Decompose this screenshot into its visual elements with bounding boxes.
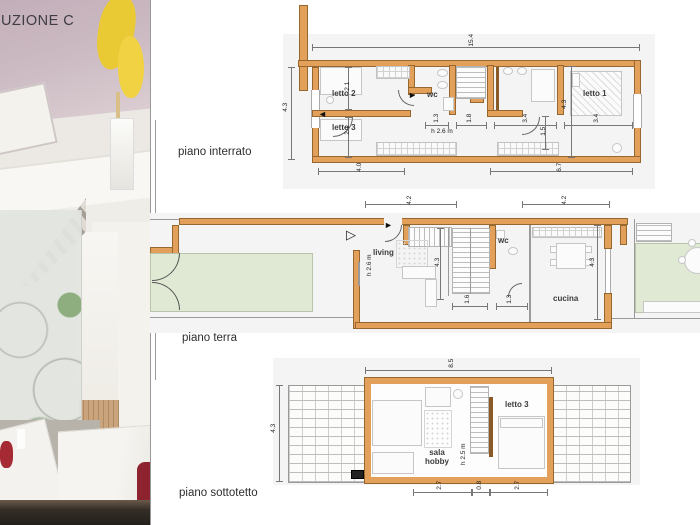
dim-line <box>594 225 601 320</box>
sottotetto-label: piano sottotetto <box>179 487 258 499</box>
sofa <box>425 279 437 307</box>
dim-line <box>365 367 552 374</box>
red-vase <box>0 441 13 468</box>
wall-line <box>150 317 355 318</box>
wardrobe <box>497 142 559 156</box>
wall-segment <box>179 218 628 225</box>
terra-label: piano terra <box>182 332 237 344</box>
dim-label: 15.4 <box>469 32 476 48</box>
wall-line <box>448 228 449 296</box>
rug <box>424 410 452 448</box>
wall-segment <box>487 65 494 115</box>
flower-bouquet <box>118 36 144 98</box>
dim-label: 2.1 <box>345 78 352 94</box>
wall-segment <box>172 225 179 254</box>
chair <box>550 246 557 253</box>
roof-hatch <box>552 385 631 483</box>
wall-segment <box>299 5 308 91</box>
bidet <box>437 81 448 89</box>
door-swing-arrow-icon: ◄ <box>318 110 327 119</box>
room-label-wc: wc <box>427 91 438 100</box>
dim-line <box>312 44 640 51</box>
interrato-label: piano interrato <box>178 146 252 158</box>
sink <box>443 97 454 111</box>
height-note: h 2.6 m <box>425 129 459 136</box>
dim-label: 4.3 <box>271 420 278 436</box>
chair <box>585 246 592 253</box>
wall-segment <box>620 225 627 245</box>
dim-label: 1.8 <box>467 110 474 126</box>
wardrobe <box>376 142 457 156</box>
dining-table <box>556 243 586 269</box>
dim-label: 1.3 <box>434 110 441 126</box>
toilet <box>503 67 513 75</box>
chair <box>550 259 557 266</box>
staircase <box>456 66 486 99</box>
rug <box>396 240 428 268</box>
railing-wall <box>489 397 493 457</box>
plumbing-wall <box>496 67 499 111</box>
staircase <box>470 386 489 454</box>
roof-hatch <box>288 385 366 483</box>
dim-label: 4.3 <box>435 254 442 270</box>
stool <box>453 389 463 399</box>
dim-label: 3.4 <box>523 110 530 126</box>
wall-segment <box>604 225 612 249</box>
room-label-cucina: cucina <box>553 295 578 304</box>
dim-label: 1.5 <box>541 123 548 139</box>
wardrobe <box>376 66 410 79</box>
kitchen-counter <box>532 227 602 238</box>
height-note: h 2.5 m <box>461 437 468 471</box>
dim-label: 3.4 <box>594 110 601 126</box>
bench <box>643 301 700 313</box>
room-label-wc: wc <box>498 237 509 246</box>
toilet <box>437 69 448 77</box>
door-swing-arrow-icon: ► <box>384 221 393 230</box>
outdoor-stairs <box>636 223 672 242</box>
dim-label: 2.1 <box>345 122 352 138</box>
wall-segment <box>487 110 523 117</box>
cabinet <box>425 387 451 407</box>
height-note: h 2.6 m <box>367 248 374 282</box>
dim-label: 1.6 <box>465 291 472 307</box>
corridor <box>78 232 118 407</box>
dim-label: 2.7 <box>437 477 444 493</box>
dim-label: 4.3 <box>590 254 597 270</box>
dim-label: 1.3 <box>507 291 514 307</box>
window <box>605 249 611 293</box>
dim-label: 4.3 <box>562 96 569 112</box>
door-swing-arrow-icon: ► <box>408 91 417 100</box>
wall-line <box>529 225 531 322</box>
sofa <box>372 452 414 474</box>
outdoor-chair <box>688 239 696 247</box>
wall-segment <box>355 322 612 329</box>
candle <box>17 429 25 449</box>
window <box>633 94 642 128</box>
dim-line <box>568 66 575 158</box>
room-label-sala-hobby: sala hobby <box>424 449 450 467</box>
dim-label: 0.8 <box>477 477 484 493</box>
wall-segment <box>489 225 496 269</box>
dim-label: 4.2 <box>562 192 569 208</box>
tv <box>358 262 360 286</box>
dark-floor-strip <box>0 500 151 525</box>
wall-line <box>150 219 180 220</box>
dim-label: 4.3 <box>283 99 290 115</box>
page-title: UZIONE C <box>1 13 74 29</box>
bidet <box>517 67 527 75</box>
dim-label: 6.7 <box>557 159 564 175</box>
pillow <box>500 418 543 428</box>
dim-label: 2.7 <box>515 477 522 493</box>
vase <box>110 118 134 190</box>
room-label-letto3: letto 3 <box>505 401 529 410</box>
staircase <box>452 228 490 294</box>
shower <box>531 69 555 102</box>
outdoor-chair <box>678 256 686 264</box>
room-label-letto1: letto 1 <box>583 90 607 99</box>
dim-label: 4.0 <box>357 159 364 175</box>
interior-render-photo: UZIONE C <box>0 0 151 525</box>
toilet <box>508 247 518 255</box>
entrance-arrow-icon: ▷ <box>346 228 356 241</box>
roof-window <box>351 470 364 479</box>
chair <box>612 143 622 153</box>
drawing-sheet: UZIONE C piano interrato ► ◄ letto 2 let… <box>0 0 700 525</box>
sofa <box>402 266 436 279</box>
room-label-living: living <box>373 249 394 258</box>
stair-stringer <box>470 228 471 294</box>
dim-label: 4.2 <box>407 192 414 208</box>
wall-line <box>612 318 700 319</box>
dim-label: 8.5 <box>449 355 456 371</box>
desk <box>372 400 422 446</box>
